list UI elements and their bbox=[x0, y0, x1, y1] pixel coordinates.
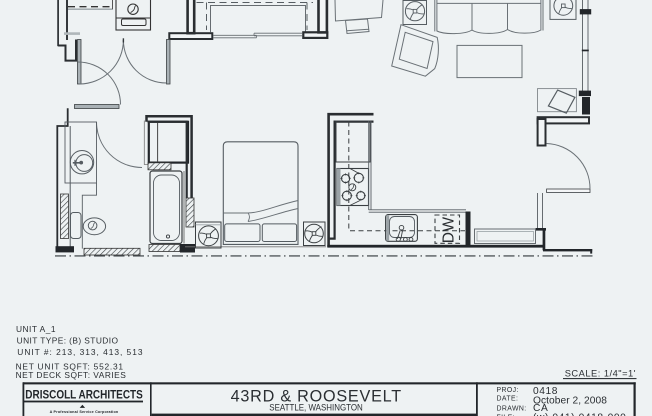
svg-text:A Professional Service Corpora: A Professional Service Corporation bbox=[50, 410, 119, 414]
svg-text:UNIT TYPE: (B) STUDIO: UNIT TYPE: (B) STUDIO bbox=[17, 335, 119, 345]
svg-text:(w) 041) 0418-000: (w) 041) 0418-000 bbox=[533, 412, 626, 416]
svg-text:DRAWN:: DRAWN: bbox=[497, 406, 527, 413]
svg-text:PROJ:: PROJ: bbox=[497, 387, 519, 394]
svg-text:DRISCOLL ARCHITECTS: DRISCOLL ARCHITECTS bbox=[25, 388, 143, 401]
svg-text:SEATTLE, WASHINGTON: SEATTLE, WASHINGTON bbox=[269, 402, 363, 412]
svg-text:UNIT #: 213, 313, 413, 513: UNIT #: 213, 313, 413, 513 bbox=[17, 347, 143, 357]
svg-text:DATE:: DATE: bbox=[497, 396, 519, 403]
svg-text:NET DECK SQFT: VARIES: NET DECK SQFT: VARIES bbox=[16, 370, 127, 380]
svg-text:UNIT A_1: UNIT A_1 bbox=[16, 324, 56, 334]
svg-text:SCALE: 1/4"=1': SCALE: 1/4"=1' bbox=[565, 368, 636, 378]
svg-text:DW: DW bbox=[441, 217, 458, 244]
